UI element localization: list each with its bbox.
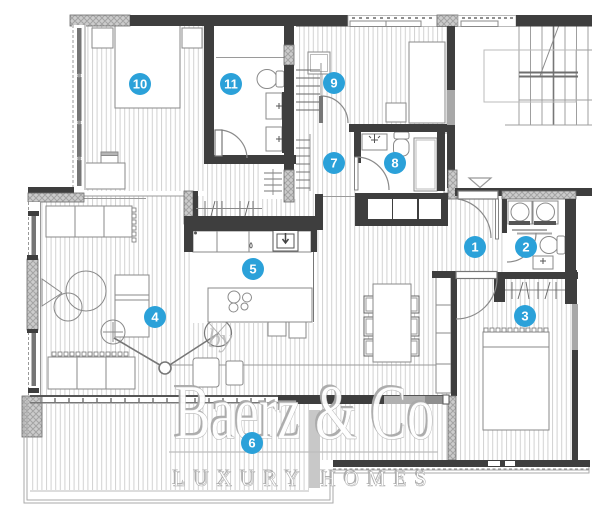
svg-text:2: 2 — [522, 240, 529, 255]
svg-text:10: 10 — [133, 77, 147, 92]
svg-text:Baerz & Co: Baerz & Co — [174, 369, 434, 456]
svg-text:1: 1 — [471, 240, 478, 255]
svg-text:LUXURY HOMES: LUXURY HOMES — [173, 466, 435, 491]
svg-text:11: 11 — [224, 77, 238, 92]
svg-text:4: 4 — [151, 310, 159, 325]
svg-text:3: 3 — [521, 309, 528, 324]
svg-text:5: 5 — [249, 262, 256, 277]
svg-text:7: 7 — [330, 156, 337, 171]
svg-text:8: 8 — [391, 156, 398, 171]
svg-text:9: 9 — [330, 76, 337, 91]
svg-text:by: by — [208, 324, 233, 353]
svg-text:6: 6 — [248, 436, 255, 451]
